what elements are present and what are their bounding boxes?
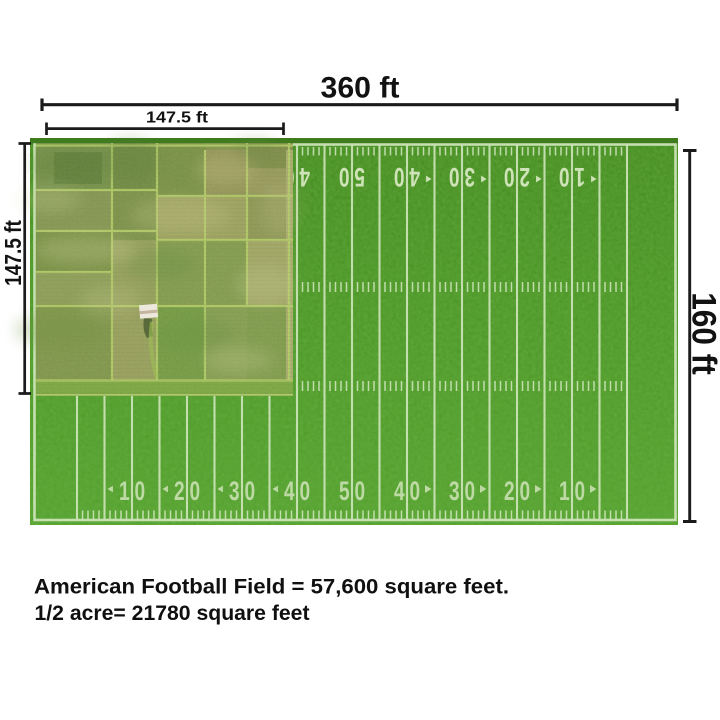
svg-text:360 ft: 360 ft <box>321 71 400 104</box>
svg-text:2: 2 <box>174 476 185 506</box>
svg-text:4: 4 <box>284 476 295 506</box>
svg-text:5: 5 <box>354 162 365 192</box>
svg-text:0: 0 <box>504 162 515 192</box>
svg-text:3: 3 <box>229 476 240 506</box>
svg-text:0: 0 <box>519 476 530 506</box>
svg-text:5: 5 <box>339 476 350 506</box>
svg-text:1: 1 <box>574 162 585 192</box>
svg-text:0: 0 <box>574 476 585 506</box>
svg-text:0: 0 <box>559 162 570 192</box>
svg-text:4: 4 <box>394 476 405 506</box>
svg-text:1: 1 <box>119 476 130 506</box>
svg-text:0: 0 <box>299 476 310 506</box>
svg-text:0: 0 <box>354 476 365 506</box>
svg-text:1: 1 <box>559 476 570 506</box>
svg-text:0: 0 <box>244 476 255 506</box>
svg-text:0: 0 <box>134 476 145 506</box>
svg-text:4: 4 <box>299 162 310 192</box>
svg-text:3: 3 <box>464 162 475 192</box>
svg-text:0: 0 <box>449 162 460 192</box>
svg-text:2: 2 <box>519 162 530 192</box>
svg-text:1/2 acre= 21780 square feet: 1/2 acre= 21780 square feet <box>35 601 310 625</box>
svg-text:2: 2 <box>504 476 515 506</box>
svg-text:0: 0 <box>464 476 475 506</box>
svg-text:147.5 ft: 147.5 ft <box>146 110 209 127</box>
svg-text:3: 3 <box>449 476 460 506</box>
svg-text:4: 4 <box>409 162 420 192</box>
svg-text:0: 0 <box>339 162 350 192</box>
svg-text:147.5 ft: 147.5 ft <box>1 220 26 286</box>
svg-text:0: 0 <box>189 476 200 506</box>
svg-text:0: 0 <box>409 476 420 506</box>
svg-text:American Football Field = 57,6: American Football Field = 57,600 square … <box>34 575 509 599</box>
svg-text:0: 0 <box>394 162 405 192</box>
svg-text:160 ft: 160 ft <box>685 292 720 375</box>
